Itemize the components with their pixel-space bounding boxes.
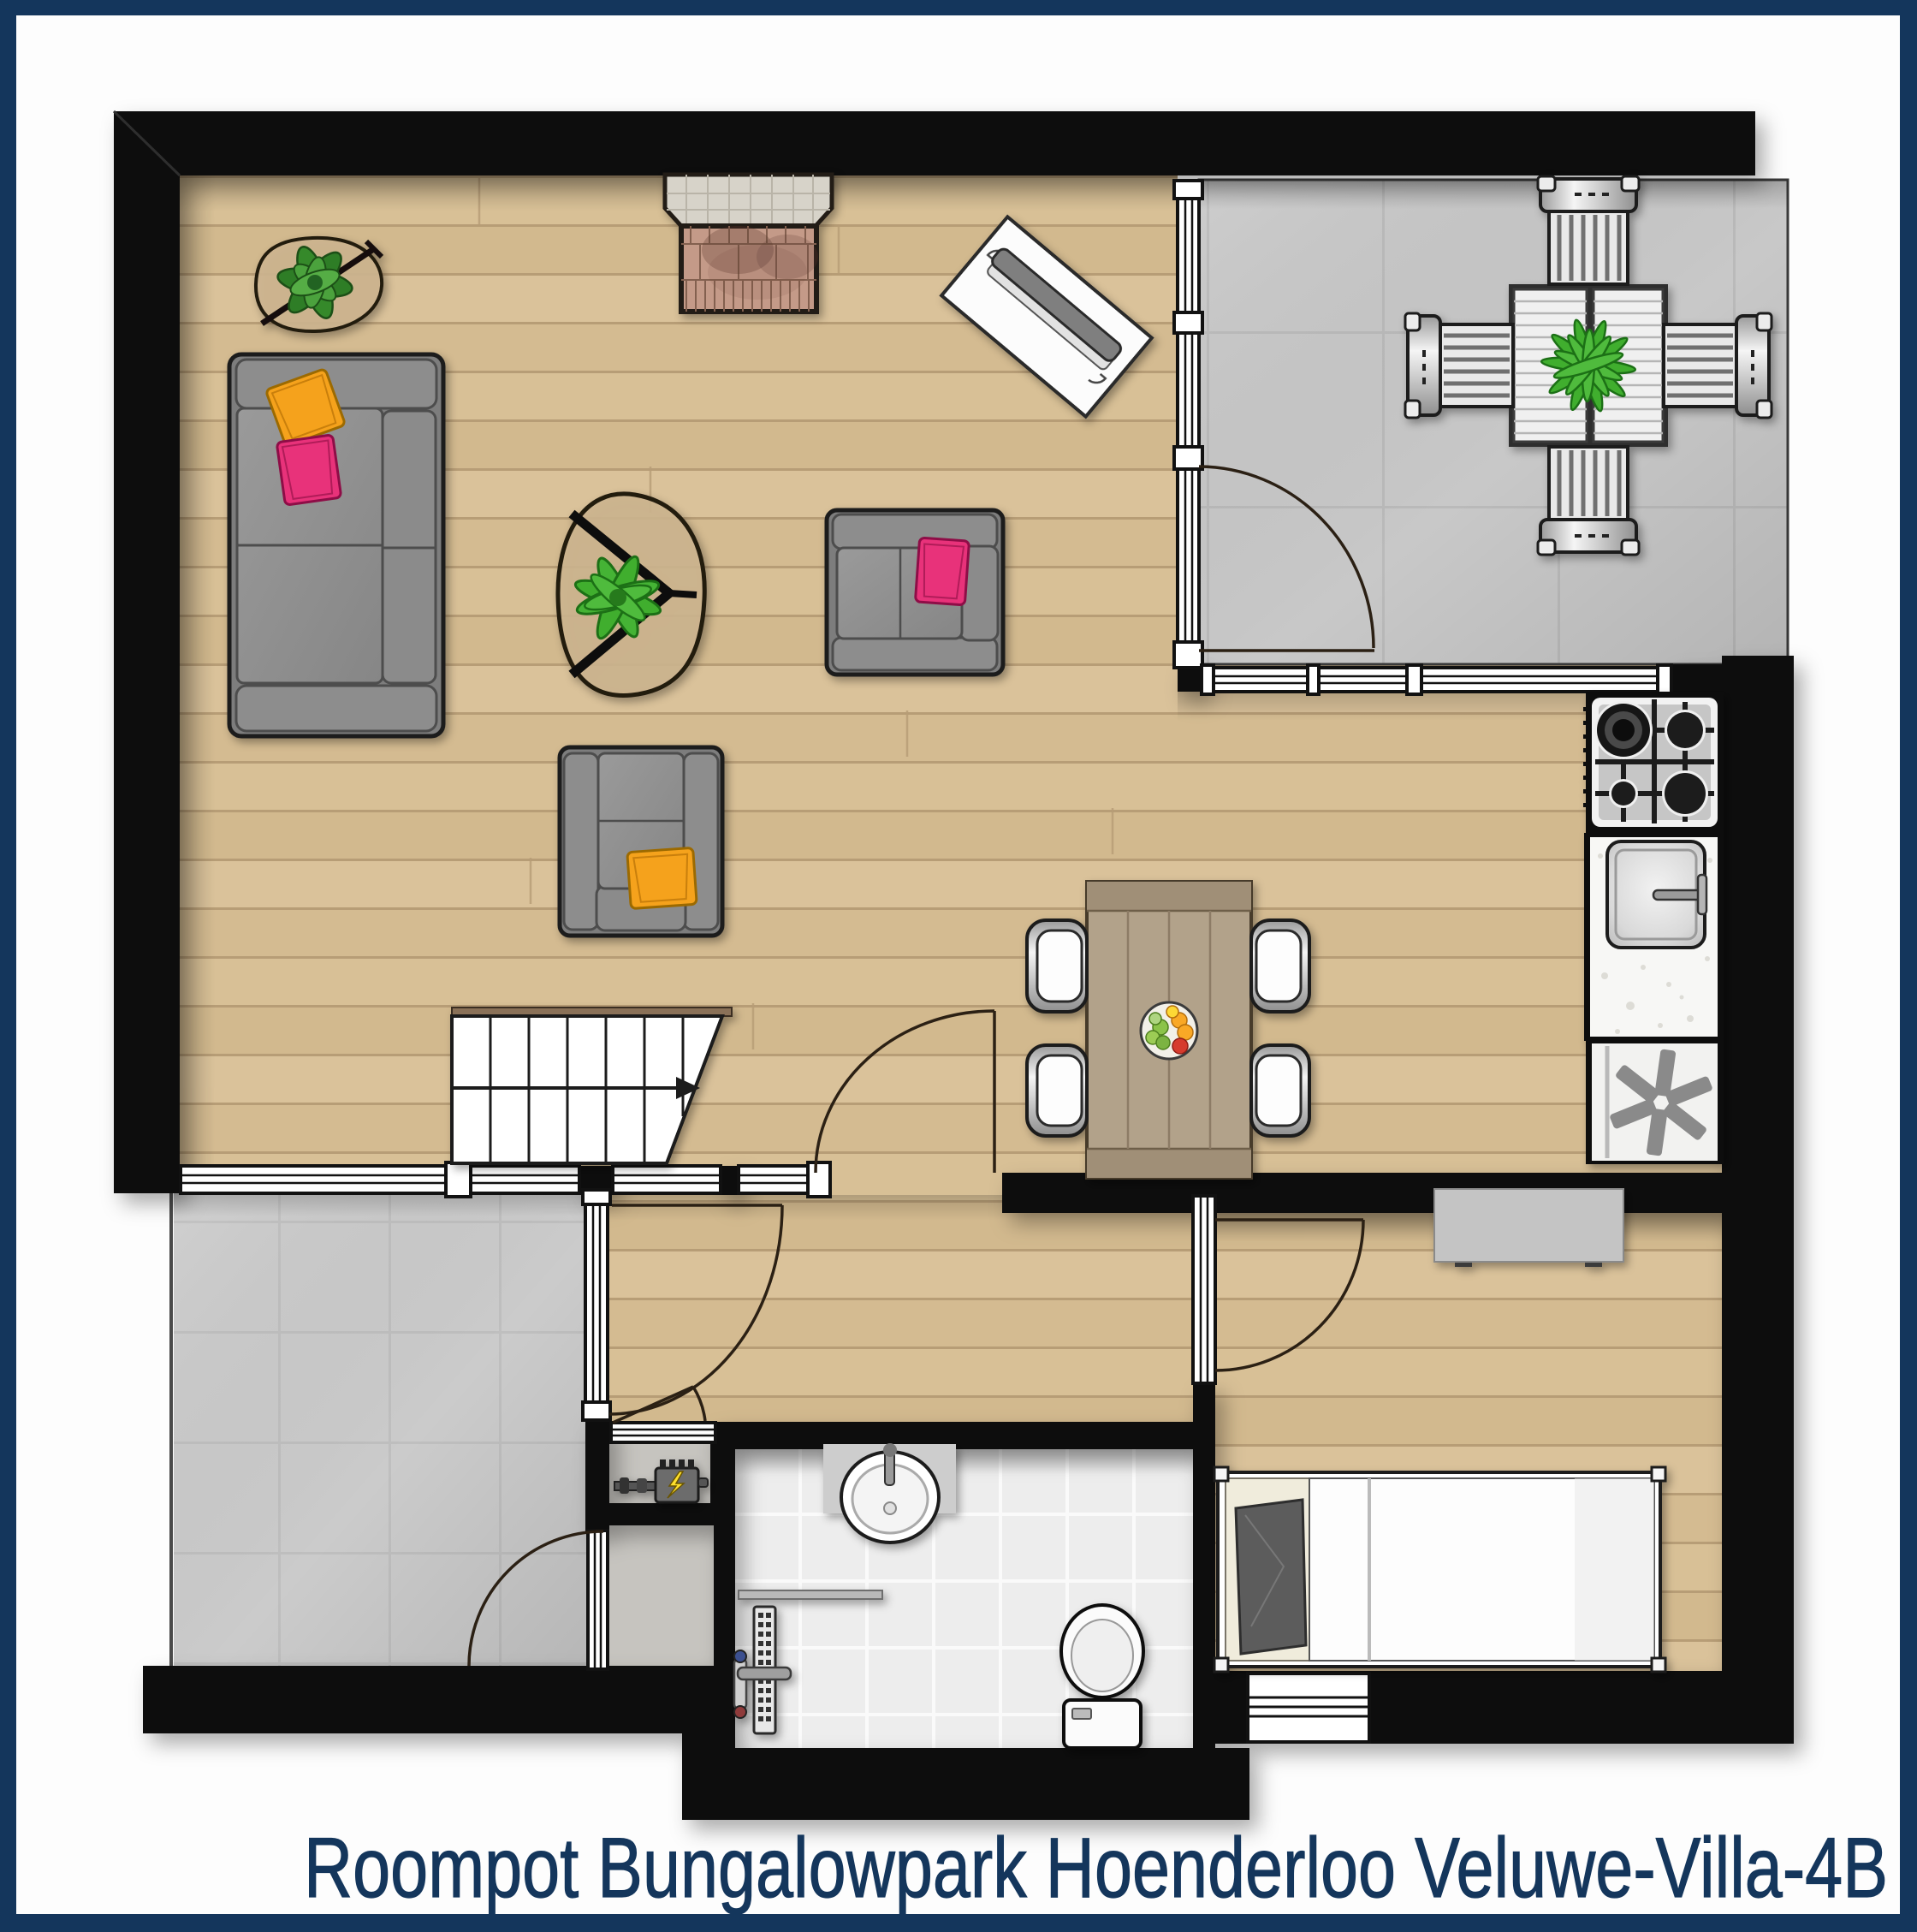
svg-text:Roompot Bungalowpark Hoenderlo: Roompot Bungalowpark Hoenderloo Veluwe-V… <box>304 1820 1888 1915</box>
